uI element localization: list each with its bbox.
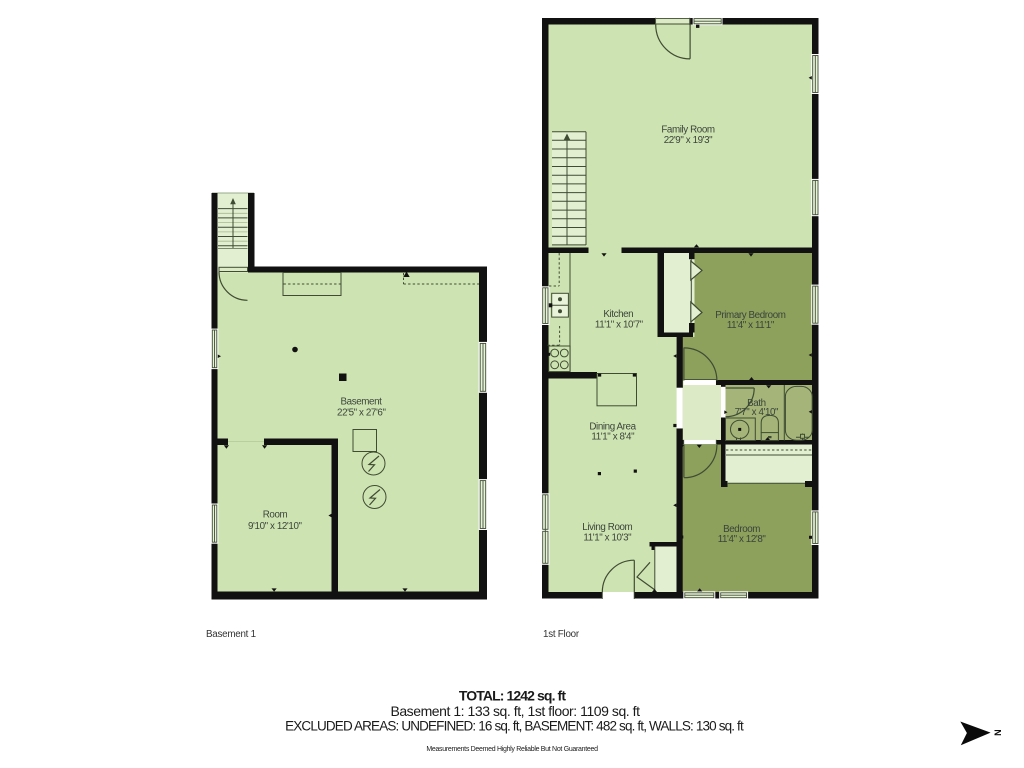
svg-text:TOTAL: 1242 sq. ft: TOTAL: 1242 sq. ft — [459, 687, 566, 703]
svg-text:9'10" x 12'10": 9'10" x 12'10" — [248, 521, 303, 532]
svg-text:Basement: Basement — [341, 396, 383, 407]
svg-text:Measurements Deemed Highly Rel: Measurements Deemed Highly Reliable But … — [426, 746, 598, 753]
svg-text:11'4" x 11'1": 11'4" x 11'1" — [727, 320, 775, 331]
svg-text:EXCLUDED AREAS: UNDEFINED: 16: EXCLUDED AREAS: UNDEFINED: 16 sq. ft, BA… — [285, 718, 744, 733]
svg-text:1st Floor: 1st Floor — [543, 629, 580, 640]
svg-text:22'9" x 19'3": 22'9" x 19'3" — [664, 135, 713, 146]
svg-text:11'1" x 8'4": 11'1" x 8'4" — [591, 431, 635, 442]
svg-text:22'5" x 27'6": 22'5" x 27'6" — [337, 407, 386, 418]
svg-text:11'1" x 10'7": 11'1" x 10'7" — [595, 319, 644, 330]
svg-text:Kitchen: Kitchen — [603, 309, 633, 320]
svg-text:Basement 1: 133 sq. ft, 1st fl: Basement 1: 133 sq. ft, 1st floor: 1109 … — [390, 703, 640, 719]
svg-text:7'7" x 4'10": 7'7" x 4'10" — [735, 407, 779, 418]
svg-text:N: N — [992, 729, 1002, 736]
svg-text:Room: Room — [263, 509, 288, 520]
svg-text:11'1" x 10'3": 11'1" x 10'3" — [583, 533, 632, 544]
svg-text:11'4" x 12'8": 11'4" x 12'8" — [718, 534, 767, 545]
svg-text:Basement 1: Basement 1 — [206, 629, 256, 640]
